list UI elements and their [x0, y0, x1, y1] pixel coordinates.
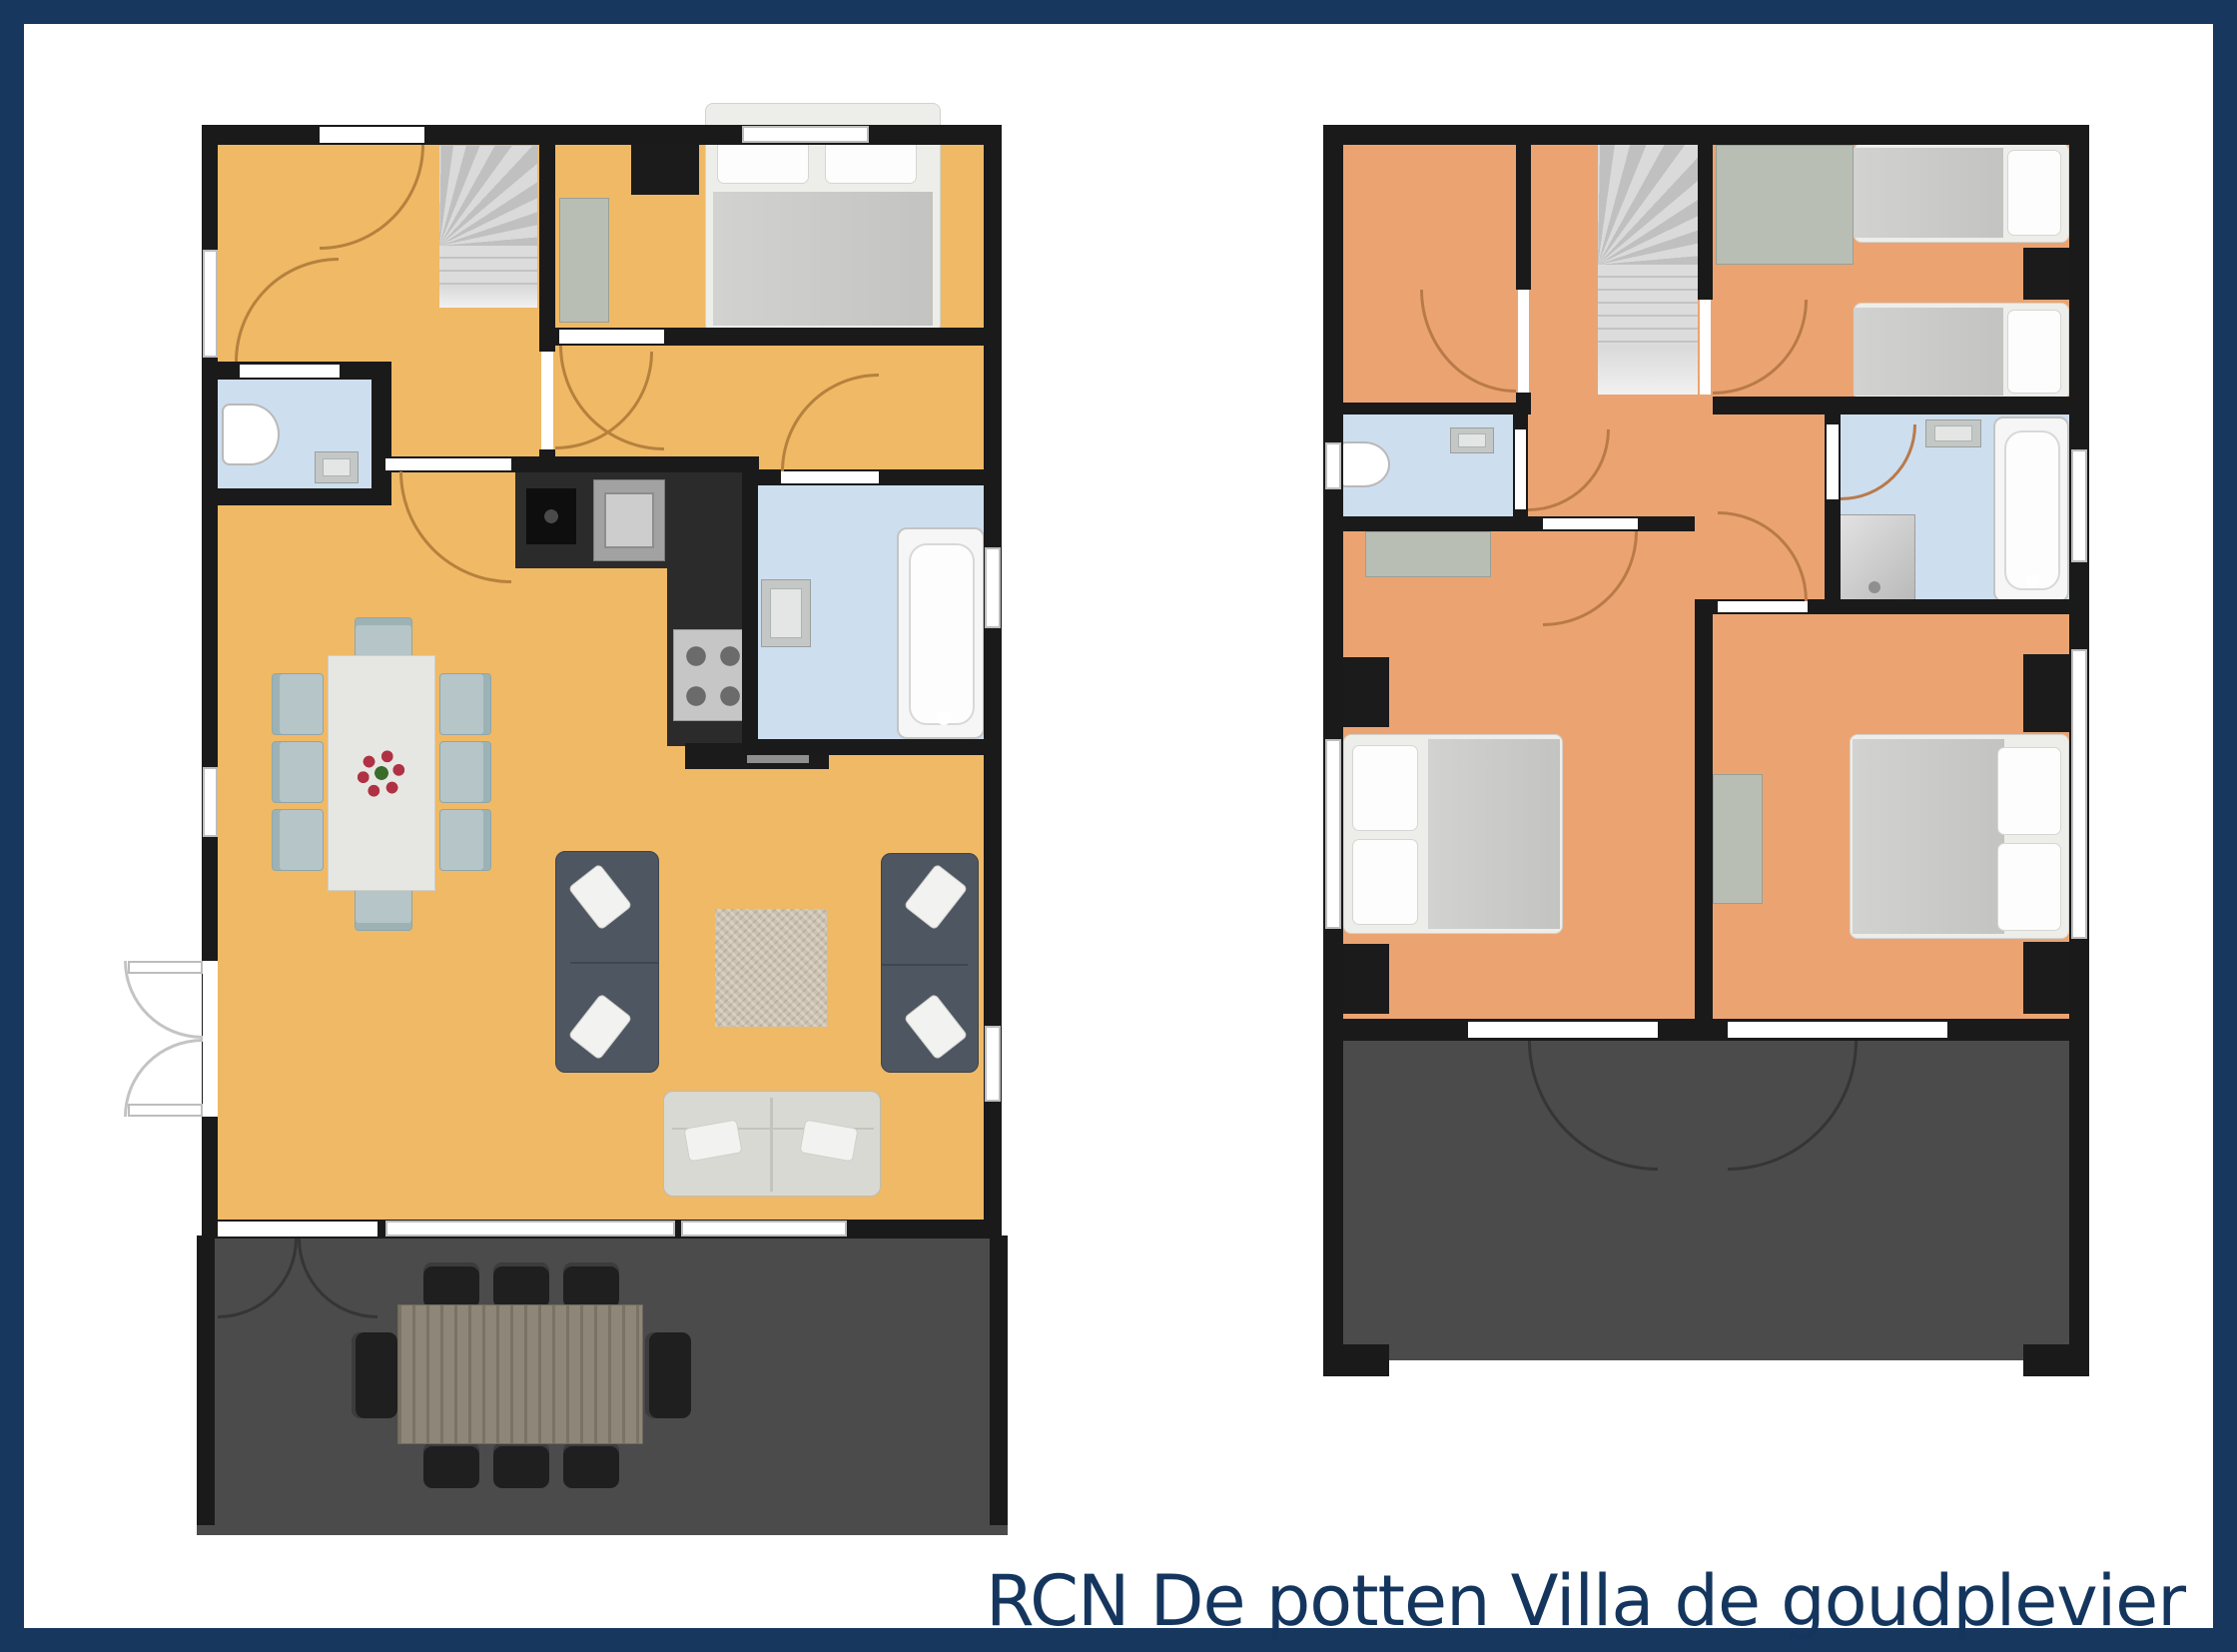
washbasin-inner: [770, 588, 802, 638]
sofa-pillow: [568, 993, 633, 1060]
window: [2071, 449, 2087, 562]
wall-room-hall: [1516, 145, 1531, 290]
toilet-sink-inner: [323, 458, 351, 476]
outer-wall-top: [1323, 125, 2089, 145]
nightstand: [1343, 944, 1389, 1014]
french-door-arc: [124, 961, 203, 1039]
staircase-upper-landing: [1598, 345, 1698, 395]
bed-blanket: [1854, 148, 2003, 238]
dining-chair: [355, 885, 412, 931]
nightstand: [1343, 657, 1389, 727]
toilet-upper: [1338, 441, 1390, 487]
staircase-ground-winders: [439, 146, 537, 246]
balcony-corner-stub: [2023, 1344, 2089, 1376]
staircase-ground-treads: [439, 246, 537, 286]
window: [203, 767, 218, 837]
dining-chair: [272, 809, 324, 871]
outdoor-chair: [423, 1262, 479, 1308]
window: [203, 250, 218, 358]
window: [985, 1026, 1001, 1102]
wall-toilet-bottom: [202, 488, 391, 505]
hall-living-door-gap: [385, 458, 511, 470]
toilet-sink-inner: [1458, 433, 1486, 447]
shower-drain: [1868, 581, 1880, 593]
pillow: [1997, 747, 2061, 835]
dining-chair: [272, 673, 324, 735]
staircase-upper-winders: [1598, 145, 1698, 265]
floorplan-image: RCN De potten Villa de goudplevier: [0, 0, 2237, 1652]
bathtub-inner: [909, 543, 975, 725]
outdoor-chair: [423, 1442, 479, 1488]
washbasin-inner: [1934, 425, 1972, 441]
pillow: [2007, 150, 2061, 236]
staircase-upper-treads: [1598, 265, 1698, 345]
sofa-dark-right: [881, 853, 979, 1073]
bed-blanket: [1854, 308, 2003, 396]
toilet-sink-ground: [315, 451, 359, 483]
bathtub-inner: [2004, 430, 2060, 590]
toilet-door-gap: [240, 365, 340, 378]
toilet-ground: [222, 404, 280, 465]
french-door-gap: [203, 961, 218, 1117]
outdoor-chair: [493, 1262, 549, 1308]
window: [385, 1221, 675, 1237]
sofa-pillow: [904, 993, 969, 1060]
bathtub-upper: [1993, 416, 2069, 602]
room-door-gap: [1518, 290, 1529, 393]
bed-blanket: [1853, 739, 2004, 934]
wardrobe: [1713, 774, 1763, 904]
window: [1325, 739, 1341, 929]
sofa-light: [663, 1091, 881, 1197]
sofa-pillow: [799, 1120, 858, 1163]
cooktop: [526, 488, 576, 544]
wall-hall-twinroom: [1698, 145, 1713, 300]
bedroom-door-gap: [559, 330, 664, 344]
nightstand: [2023, 942, 2069, 1014]
pillow: [1352, 745, 1418, 831]
washbasin-upper: [1925, 419, 1981, 447]
pillow: [1997, 843, 2061, 931]
wardrobe: [1365, 531, 1491, 577]
window: [1325, 442, 1341, 489]
sofa-pillow: [683, 1120, 742, 1163]
bathtub-drain: [937, 711, 951, 725]
vestibule-door-gap: [541, 352, 553, 449]
wall-toilet-bottom: [1323, 516, 1695, 531]
sofa-seam: [770, 1098, 773, 1192]
outdoor-dining-table: [397, 1304, 643, 1444]
bathtub-ground: [897, 527, 985, 739]
pillow: [2007, 310, 2061, 394]
balcony-wall-right: [2069, 1041, 2089, 1376]
sofa-seam: [570, 962, 658, 964]
pillow: [1352, 839, 1418, 925]
nightstand: [2023, 654, 2069, 732]
stove: [673, 629, 749, 721]
sink-bowl: [604, 492, 654, 548]
sofa-pillow: [904, 863, 969, 930]
nightstand: [2023, 248, 2069, 300]
outdoor-chair: [352, 1332, 397, 1418]
bathroom-door-gap: [781, 471, 879, 483]
plan-title: RCN De potten Villa de goudplevier: [986, 1560, 2185, 1642]
sofa-dark-left: [555, 851, 659, 1073]
shower: [1838, 514, 1915, 604]
bed-blanket: [713, 192, 933, 326]
wall-twinroom-bottom: [1713, 397, 2089, 414]
outdoor-chair: [493, 1442, 549, 1488]
terrace-wall-left: [197, 1236, 215, 1525]
wall-bathroom-bottom: [742, 739, 1002, 755]
balcony-wall-left: [1323, 1041, 1343, 1376]
bedroom2-door-gap: [1718, 601, 1808, 612]
balcony-door-gap: [1468, 1022, 1658, 1038]
balcony-corner-stub: [1323, 1344, 1389, 1376]
toilet-door-gap: [1515, 429, 1526, 509]
bathtub-drain: [2026, 574, 2039, 587]
terrace-door-gap: [218, 1222, 377, 1237]
balcony-door-gap: [1728, 1022, 1947, 1038]
balcony-floor: [1343, 1041, 2069, 1360]
flower-centerpiece: [358, 747, 405, 799]
bedroom1-door-gap: [1543, 518, 1638, 529]
coffee-rug: [715, 909, 827, 1027]
terrace-wall-right: [990, 1236, 1008, 1525]
dining-chair: [439, 673, 491, 735]
french-door-arc: [124, 1039, 203, 1117]
wall-toilet-top: [1343, 403, 1528, 414]
wardrobe: [1716, 145, 1854, 265]
washbasin-ground: [761, 579, 811, 647]
bathroom-door-gap: [1827, 424, 1839, 499]
closet: [631, 145, 699, 195]
twinroom-door-gap: [1700, 300, 1711, 395]
window: [681, 1221, 847, 1237]
entry-door-gap: [320, 127, 424, 143]
window: [985, 547, 1001, 628]
dining-chair: [439, 809, 491, 871]
outdoor-chair: [645, 1332, 691, 1418]
wardrobe: [559, 198, 609, 323]
wall-bedrooms-divider: [1695, 599, 1713, 1041]
window: [2071, 649, 2087, 939]
wall-hall-bedroom: [539, 125, 555, 352]
wall-toilet-right: [372, 362, 391, 505]
wall-bathroom-left: [742, 469, 758, 755]
kitchen-sink: [593, 479, 665, 561]
window: [742, 126, 869, 143]
sofa-seam: [882, 964, 968, 966]
staircase-ground-landing: [439, 286, 537, 308]
sofa-pillow: [568, 863, 633, 930]
bed-blanket: [1428, 739, 1560, 929]
dining-chair: [272, 741, 324, 803]
toilet-sink-upper: [1450, 427, 1494, 453]
dining-chair: [439, 741, 491, 803]
outdoor-chair: [563, 1262, 619, 1308]
outdoor-chair: [563, 1442, 619, 1488]
